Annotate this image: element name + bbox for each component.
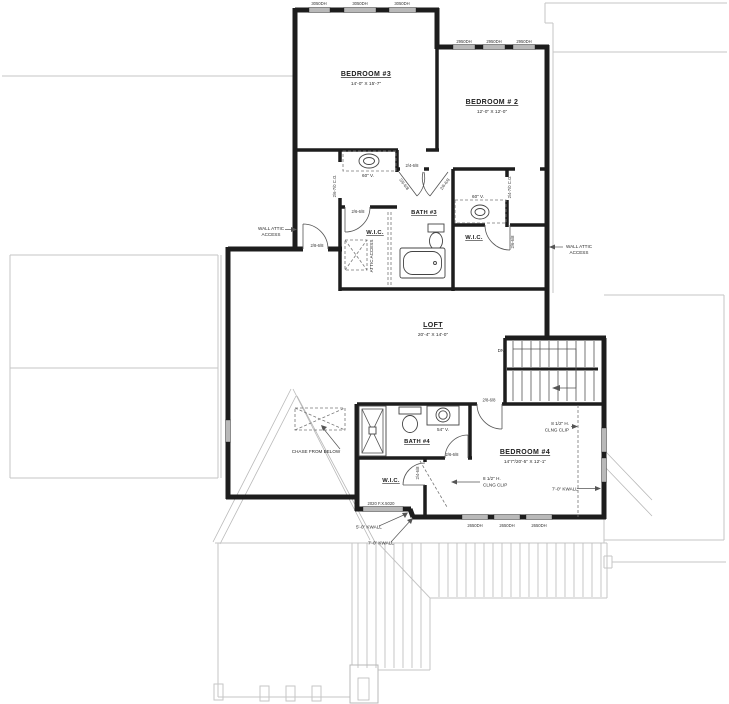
window-bedroom3-2: 3050DH <box>352 1 367 6</box>
toilet-bath3 <box>428 224 444 250</box>
room-bedroom2-name: BEDROOM # 2 <box>466 99 519 106</box>
vanity-right-bath3 <box>455 200 506 223</box>
note-wall-attic-left-2: ACCESS <box>262 232 281 237</box>
room-bedroom4-name: BEDROOM #4 <box>500 449 550 456</box>
door-bath3-angled-right-label: 2/6-6/8 <box>439 177 451 191</box>
vanity4-label: 54" V. <box>437 427 449 432</box>
door-co-left-label: 2/6-7/0 C.O. <box>332 175 337 198</box>
note-wall-attic-right-1: WALL ATTIC <box>566 244 593 249</box>
note-clip-right-2: CLNG CLIP <box>545 428 569 433</box>
bathtub-bath3 <box>400 248 445 278</box>
shower-bath4 <box>359 406 386 456</box>
room-bedroom4-dims: 14'7"/20'-5" X 12'-1" <box>504 459 547 465</box>
toilet-bath4 <box>399 407 421 433</box>
note-wall-attic-left-1: WALL ATTIC <box>258 226 285 231</box>
note-kwall-7: 7'-0" KWALL <box>368 541 394 546</box>
attic-access-panel <box>345 212 391 287</box>
window-bedroom3-1: 3050DH <box>311 1 326 6</box>
door-bath4-label: 2/6-6/8 <box>445 452 459 457</box>
room-bedroom3-dims: 14'-0" X 15'-7" <box>351 81 382 87</box>
door-bath3-angled-left-label: 2/6-6/8 <box>398 177 410 191</box>
window-bedroom4-1: 2650DH <box>467 523 482 528</box>
vanity-left-bath3 <box>343 151 396 171</box>
window-bedroom4-3: 2650DH <box>531 523 546 528</box>
door-wic4-label: 2/4-6/8 <box>415 466 420 480</box>
room-bedroom3-name: BEDROOM #3 <box>341 71 391 78</box>
stairs-dn-label: DN <box>498 348 505 353</box>
note-kwall-right: 7'-0" KWALL <box>552 487 578 492</box>
note-clip-left-2: CLNG CLIP <box>483 483 507 488</box>
room-bedroom2-dims: 12'-0" X 12'-0" <box>477 109 508 115</box>
note-wall-attic-right-2: ACCESS <box>570 250 589 255</box>
window-bedroom2-3: 2950DH <box>516 39 531 44</box>
note-attic-access: ATTIC ACCESS <box>369 240 374 273</box>
room-wic-left-name: W.I.C. <box>366 230 384 236</box>
vanity3-right-label: 60" V. <box>472 194 484 199</box>
note-chase: CHASE FROM BELOW <box>292 449 341 454</box>
note-clip-left-1: 8 1/2" H. <box>483 476 501 481</box>
door-bedroom4-entry-label: 2/8-6/8 <box>482 398 496 403</box>
vanity-bath4 <box>427 406 459 425</box>
room-bath3-name: BATH #3 <box>411 210 437 216</box>
interior-walls <box>295 49 604 519</box>
window-bedroom4-2: 2650DH <box>499 523 514 528</box>
floor-plan-page: DN <box>0 0 729 704</box>
door-co-right-label: 2/4-7/0 C.O. <box>507 176 512 199</box>
vanity3-left-label: 60" V. <box>362 173 374 178</box>
room-bath4-name: BATH #4 <box>404 439 430 445</box>
door-wic-left-label: 2/6-6/8 <box>351 209 365 214</box>
room-loft-dims: 20'-4" X 14'-0" <box>418 332 449 338</box>
window-bedroom3-3: 3050DH <box>394 1 409 6</box>
note-kwall-5: 5'-0" KWALL <box>356 525 382 530</box>
room-wic4-name: W.I.C. <box>382 478 400 484</box>
note-clip-right-1: 8 1/2" H. <box>551 421 569 426</box>
stairs: DN <box>498 341 598 401</box>
door-hall-loft-label: 2/8-6/8 <box>310 243 324 248</box>
room-loft-name: LOFT <box>423 322 443 329</box>
deck-hatch <box>358 543 601 668</box>
room-wic-right-name: W.I.C. <box>465 235 483 241</box>
door-bath3-entry-label: 2/4-6/8 <box>405 163 419 168</box>
chase-from-below <box>295 408 345 449</box>
door-wic-right-label: 2/6-6/8 <box>510 235 515 249</box>
window-bedroom2-1: 2950DH <box>456 39 471 44</box>
window-wic4-fixed-label: 2020 F.X.5020 <box>367 501 395 506</box>
floor-plan-drawing: DN <box>0 0 729 704</box>
window-bedroom2-2: 2950DH <box>486 39 501 44</box>
below-roof-layer <box>2 3 727 703</box>
